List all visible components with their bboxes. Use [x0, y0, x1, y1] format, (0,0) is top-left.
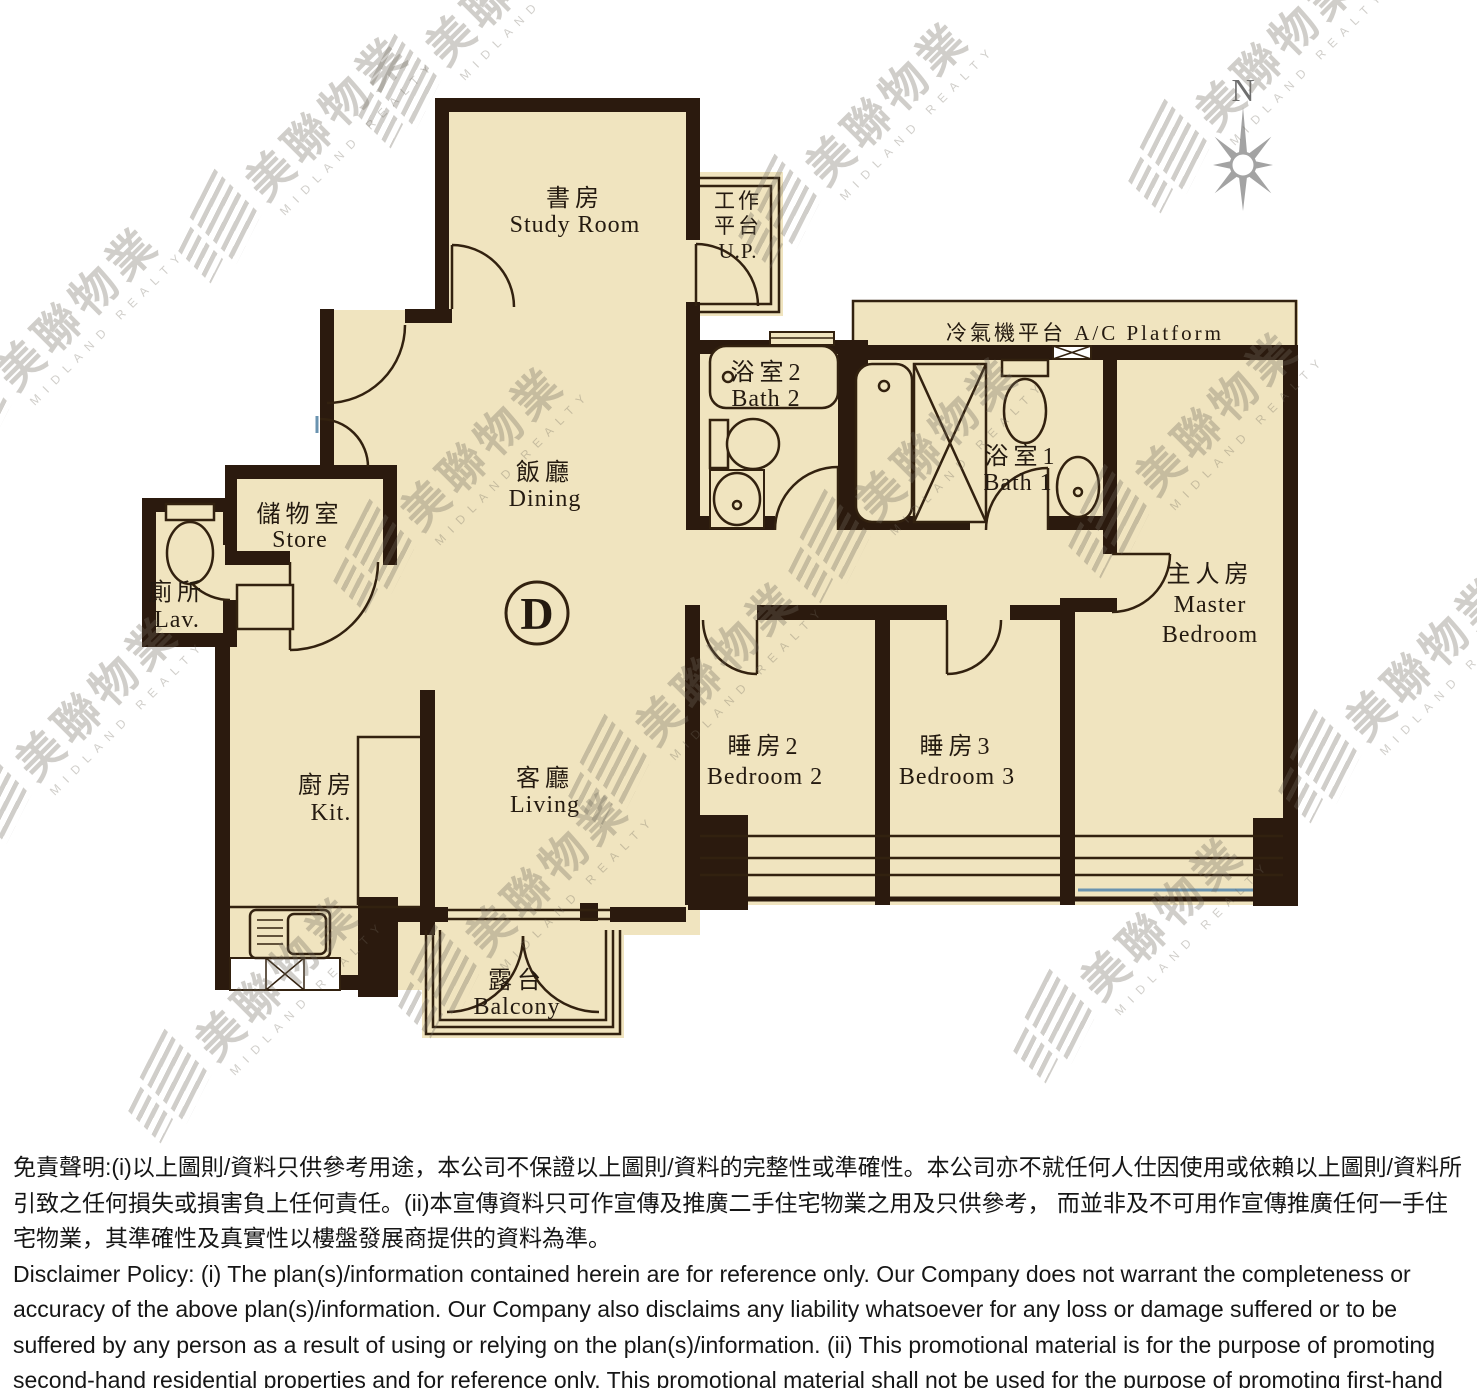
label-living-en: Living	[510, 792, 580, 818]
floor-plan-page: D 書房 Study Room 工作 平台 U.P. 冷氣機平台 A/C Pla…	[0, 0, 1477, 1388]
label-store-cn: 儲物室	[257, 501, 344, 528]
bath2-window	[770, 332, 834, 345]
label-bath1-en: Bath 1	[983, 470, 1052, 496]
label-balcony-en: Balcony	[474, 994, 561, 1020]
label-bath1-cn: 浴室1	[985, 443, 1060, 470]
label-bedroom3-cn: 睡房3	[920, 733, 995, 760]
label-master-en1: Master	[1174, 592, 1247, 618]
bath2-basin	[710, 470, 764, 528]
compass-north-label: N	[1231, 72, 1254, 108]
lav-toilet	[166, 504, 214, 584]
label-balcony-cn: 露台	[488, 967, 546, 994]
label-study-cn: 書房	[546, 185, 604, 212]
label-store-en: Store	[272, 527, 328, 553]
label-bath2-cn: 浴室2	[731, 359, 806, 386]
label-up-cn2: 平台	[714, 214, 762, 238]
bath1-basin	[1057, 457, 1099, 517]
unit-label: D	[520, 588, 553, 639]
label-bedroom2-en: Bedroom 2	[707, 764, 823, 790]
label-lav-en: Lav.	[154, 607, 200, 633]
compass: N	[1213, 72, 1273, 211]
floor-plan-svg: D 書房 Study Room 工作 平台 U.P. 冷氣機平台 A/C Pla…	[0, 0, 1477, 1145]
kitchen-window	[230, 958, 340, 990]
label-master-en2: Bedroom	[1162, 622, 1258, 648]
label-kitchen-cn: 廚房	[298, 772, 356, 799]
label-up-cn1: 工作	[714, 189, 762, 213]
label-dining-en: Dining	[509, 486, 582, 512]
label-lav-cn: 廁所	[148, 579, 206, 606]
ac-louvre-window	[1053, 346, 1091, 359]
label-bedroom3-en: Bedroom 3	[899, 764, 1015, 790]
bath1-bathtub	[856, 364, 912, 522]
bath2-toilet	[710, 419, 779, 469]
label-kitchen-en: Kit.	[311, 800, 352, 826]
lav-basin	[237, 585, 293, 629]
label-dining-cn: 飯廳	[516, 459, 574, 486]
label-living-cn: 客廳	[516, 765, 574, 792]
label-ac: 冷氣機平台 A/C Platform	[946, 321, 1224, 345]
bath1-shower	[914, 364, 986, 522]
disclaimer-block: 免責聲明:(i)以上圖則/資料只供參考用途，本公司不保證以上圖則/資料的完整性或…	[13, 1150, 1465, 1388]
label-up-en: U.P.	[718, 239, 757, 263]
bath1-toilet	[1002, 360, 1048, 443]
disclaimer-zh: 免責聲明:(i)以上圖則/資料只供參考用途，本公司不保證以上圖則/資料的完整性或…	[13, 1150, 1465, 1257]
label-bath2-en: Bath 2	[731, 386, 800, 412]
kitchen-sink	[250, 910, 330, 958]
compass-hub	[1231, 153, 1255, 177]
label-bedroom2-cn: 睡房2	[728, 733, 803, 760]
disclaimer-en: Disclaimer Policy: (i) The plan(s)/infor…	[13, 1257, 1465, 1388]
label-master-cn: 主人房	[1167, 561, 1254, 588]
label-study-en: Study Room	[510, 212, 641, 238]
